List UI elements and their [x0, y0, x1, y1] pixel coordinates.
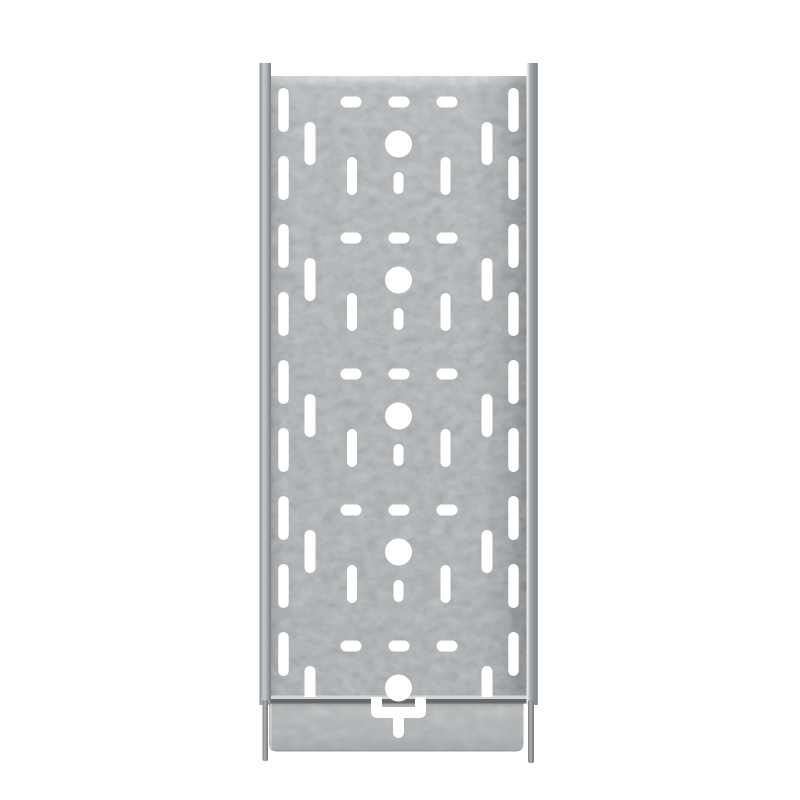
- outer-vertical-slot: [441, 565, 451, 603]
- edge-vertical-slot: [508, 156, 519, 200]
- edge-vertical-slot: [278, 496, 289, 540]
- side-rail-right: [527, 63, 539, 705]
- center-hole: [385, 539, 412, 566]
- edge-vertical-slot: [508, 496, 519, 540]
- dash-slot: [341, 641, 362, 652]
- dash-slot: [437, 369, 458, 380]
- dash-slot: [437, 641, 458, 652]
- cable-tray-product-image: [0, 0, 800, 800]
- side-rail-right-foot: [528, 700, 534, 763]
- inner-vertical-slot: [305, 258, 316, 301]
- edge-vertical-slot: [278, 156, 289, 200]
- cable-tray-illustration: [0, 0, 800, 800]
- edge-vertical-slot: [278, 428, 289, 472]
- small-vertical-slot: [394, 580, 404, 602]
- dash-slot: [389, 233, 410, 244]
- edge-vertical-slot: [508, 428, 519, 472]
- edge-vertical-slot: [508, 224, 519, 268]
- small-vertical-slot: [394, 444, 404, 466]
- side-rail-left-foot: [263, 700, 269, 761]
- dash-slot: [389, 369, 410, 380]
- center-hole: [385, 675, 412, 702]
- inner-vertical-slot: [305, 122, 316, 165]
- connector-plate-edge-light: [270, 704, 273, 748]
- outer-vertical-slot: [441, 157, 451, 195]
- galvanized-texture-light: [271, 76, 527, 697]
- edge-vertical-slot: [278, 224, 289, 268]
- edge-vertical-slot: [508, 360, 519, 404]
- bracket-stem-slot: [393, 712, 404, 738]
- center-hole: [385, 403, 412, 430]
- edge-vertical-slot: [508, 88, 519, 132]
- outer-vertical-slot: [347, 293, 357, 331]
- dash-slot: [437, 233, 458, 244]
- inner-vertical-slot: [305, 530, 316, 573]
- outer-vertical-slot: [347, 565, 357, 603]
- outer-vertical-slot: [441, 429, 451, 467]
- edge-vertical-slot: [278, 564, 289, 608]
- inner-vertical-slot: [482, 122, 493, 165]
- dash-slot: [341, 233, 362, 244]
- inner-vertical-slot: [305, 394, 316, 437]
- edge-vertical-slot: [278, 292, 289, 336]
- dash-slot: [389, 641, 410, 652]
- center-hole: [385, 131, 412, 158]
- inner-vertical-slot: [482, 394, 493, 437]
- dash-slot: [437, 505, 458, 516]
- outer-vertical-slot: [347, 157, 357, 195]
- dash-slot: [341, 505, 362, 516]
- inner-vertical-slot: [482, 258, 493, 301]
- edge-vertical-slot: [508, 564, 519, 608]
- edge-vertical-slot: [278, 88, 289, 132]
- edge-vertical-slot: [508, 632, 519, 676]
- small-vertical-slot: [394, 308, 404, 330]
- outer-vertical-slot: [441, 293, 451, 331]
- dash-slot: [341, 369, 362, 380]
- dash-slot: [437, 97, 458, 108]
- dash-slot: [389, 97, 410, 108]
- center-hole: [385, 267, 412, 294]
- side-rail-left: [260, 63, 272, 705]
- edge-vertical-slot: [278, 360, 289, 404]
- dash-slot: [389, 505, 410, 516]
- dash-slot: [341, 97, 362, 108]
- small-vertical-slot: [394, 172, 404, 194]
- outer-vertical-slot: [347, 429, 357, 467]
- edge-vertical-slot: [508, 292, 519, 336]
- inner-vertical-slot: [482, 530, 493, 573]
- edge-vertical-slot: [278, 632, 289, 676]
